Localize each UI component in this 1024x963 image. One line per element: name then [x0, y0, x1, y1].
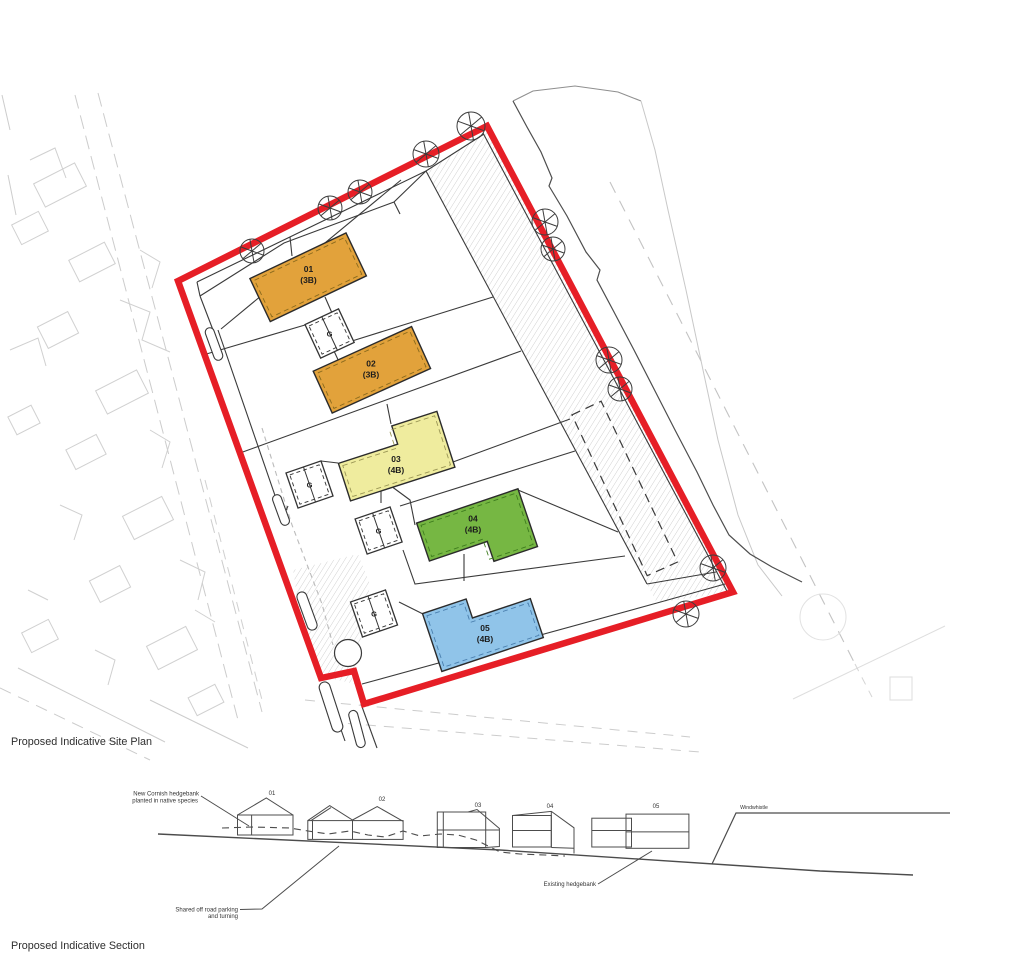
svg-text:Proposed Indicative Site Plan: Proposed Indicative Site Plan [11, 736, 152, 748]
svg-text:01: 01 [269, 791, 276, 797]
svg-text:02: 02 [379, 797, 386, 803]
svg-text:01: 01 [304, 264, 314, 274]
svg-text:(4B): (4B) [465, 525, 482, 535]
svg-text:and turning: and turning [208, 914, 238, 920]
svg-text:planted in native species: planted in native species [132, 799, 198, 805]
svg-text:04: 04 [547, 804, 554, 810]
svg-text:G: G [327, 330, 333, 339]
svg-text:(4B): (4B) [477, 634, 494, 644]
svg-text:Shared off road parking: Shared off road parking [175, 908, 238, 914]
svg-text:04: 04 [468, 514, 478, 524]
svg-text:05: 05 [480, 623, 490, 633]
svg-text:03: 03 [475, 803, 482, 809]
svg-text:New Cornish hedgebank: New Cornish hedgebank [133, 792, 200, 798]
svg-text:(3B): (3B) [300, 275, 317, 285]
svg-text:Windwhistle: Windwhistle [740, 805, 768, 811]
svg-text:(4B): (4B) [388, 465, 405, 475]
svg-text:(3B): (3B) [363, 370, 380, 380]
svg-text:G: G [371, 610, 377, 619]
svg-text:Existing hedgebank: Existing hedgebank [544, 882, 597, 888]
svg-text:G: G [376, 527, 382, 536]
svg-text:05: 05 [653, 804, 660, 810]
svg-text:03: 03 [391, 454, 401, 464]
svg-text:Proposed Indicative Section: Proposed Indicative Section [11, 940, 145, 952]
svg-text:02: 02 [366, 359, 376, 369]
svg-text:G: G [307, 481, 313, 490]
